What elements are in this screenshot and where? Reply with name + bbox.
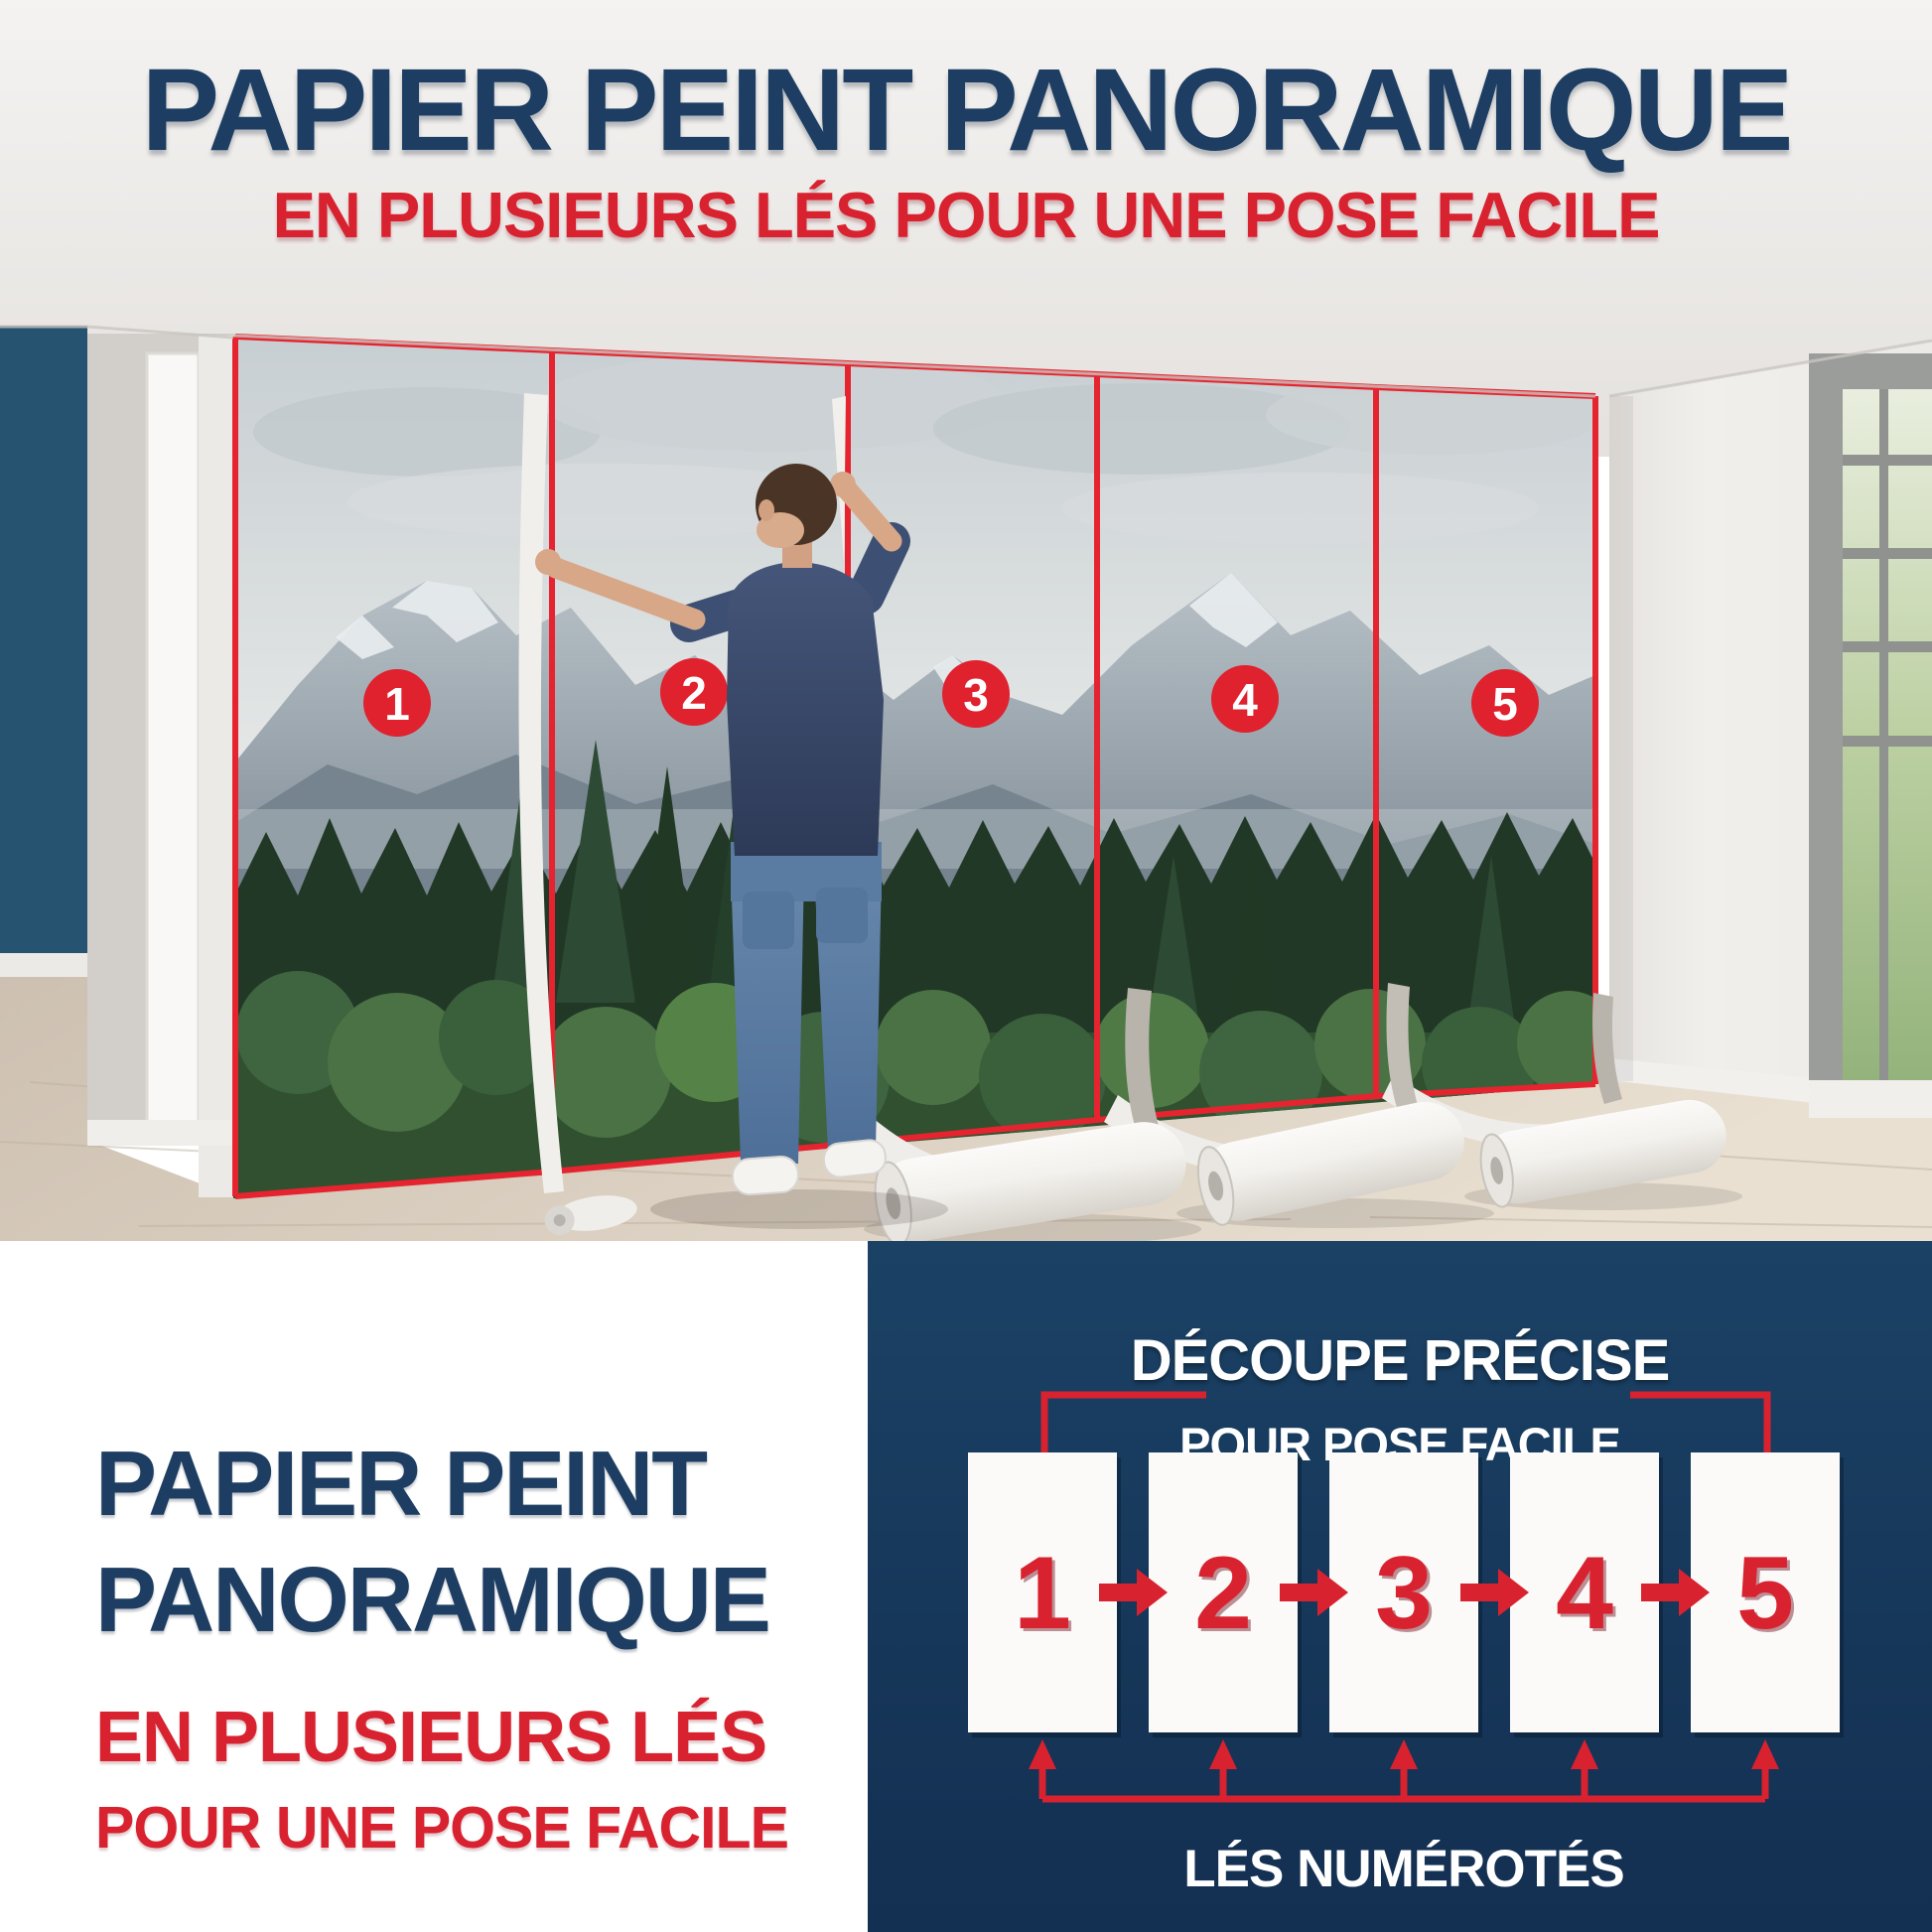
strip-circle-1-label: 1 xyxy=(384,678,410,730)
door xyxy=(147,353,199,1134)
jeans-pocket-left xyxy=(743,892,794,949)
hallway-baseboard xyxy=(87,1120,233,1146)
man-left-hand xyxy=(535,549,561,575)
left-accent-wall xyxy=(0,326,87,969)
diagram-strip-number-1: 1 xyxy=(1014,1536,1071,1651)
diagram-svg: DÉCOUPE PRÉCISE POUR POSE FACILE xyxy=(868,1241,1932,1932)
strip-circle-5-label: 5 xyxy=(1492,678,1518,730)
man-shoe-right xyxy=(822,1139,887,1178)
strip-circle-2-label: 2 xyxy=(681,667,707,719)
corner-shadow xyxy=(1609,396,1633,1081)
bottom-left-panel: PAPIER PEINT PANORAMIQUE EN PLUSIEURS LÉ… xyxy=(0,1241,868,1932)
man-tshirt xyxy=(727,562,884,856)
man-ear xyxy=(759,499,774,521)
diagram-strips: 1 2 3 4 5 xyxy=(968,1452,1844,1737)
diagram-caption: LÉS NUMÉROTÉS xyxy=(1183,1839,1623,1898)
window xyxy=(1809,353,1932,1118)
bottom-bracket xyxy=(1029,1739,1779,1799)
mural-wall xyxy=(233,328,1620,1211)
diagram-strip-number-4: 4 xyxy=(1556,1536,1613,1651)
poster-root: 1 2 3 4 5 xyxy=(0,0,1932,1932)
main-headline: PAPIER PEINT PANORAMIQUE xyxy=(0,52,1932,169)
bl-subheadline-line1: EN PLUSIEURS LÉS xyxy=(95,1702,788,1773)
bl-headline-line1: PAPIER PEINT xyxy=(95,1438,788,1530)
room-photo: 1 2 3 4 5 xyxy=(0,0,1932,1241)
top-banner: PAPIER PEINT PANORAMIQUE EN PLUSIEURS LÉ… xyxy=(0,52,1932,247)
man-shoe-left xyxy=(732,1156,799,1196)
main-subheadline: EN PLUSIEURS LÉS POUR UNE POSE FACILE xyxy=(0,183,1932,247)
diagram-strip-number-2: 2 xyxy=(1194,1536,1252,1651)
bl-headline-line2: PANORAMIQUE xyxy=(95,1554,788,1646)
diagram-strip-number-3: 3 xyxy=(1375,1536,1433,1651)
strip-circle-3-label: 3 xyxy=(963,669,989,721)
diagram-panel: DÉCOUPE PRÉCISE POUR POSE FACILE xyxy=(868,1241,1932,1932)
jeans-pocket-right xyxy=(816,888,868,943)
diagram-title-line1: DÉCOUPE PRÉCISE xyxy=(1131,1328,1670,1393)
window-sill xyxy=(1809,1080,1932,1118)
bl-subheadline-line2: POUR UNE POSE FACILE xyxy=(95,1799,788,1858)
strip-circle-4-label: 4 xyxy=(1232,674,1258,726)
diagram-strip-number-5: 5 xyxy=(1736,1536,1794,1651)
pillar-side-face xyxy=(199,336,233,1197)
left-baseboard xyxy=(0,953,87,977)
bottom-left-text-block: PAPIER PEINT PANORAMIQUE EN PLUSIEURS LÉ… xyxy=(95,1438,788,1858)
